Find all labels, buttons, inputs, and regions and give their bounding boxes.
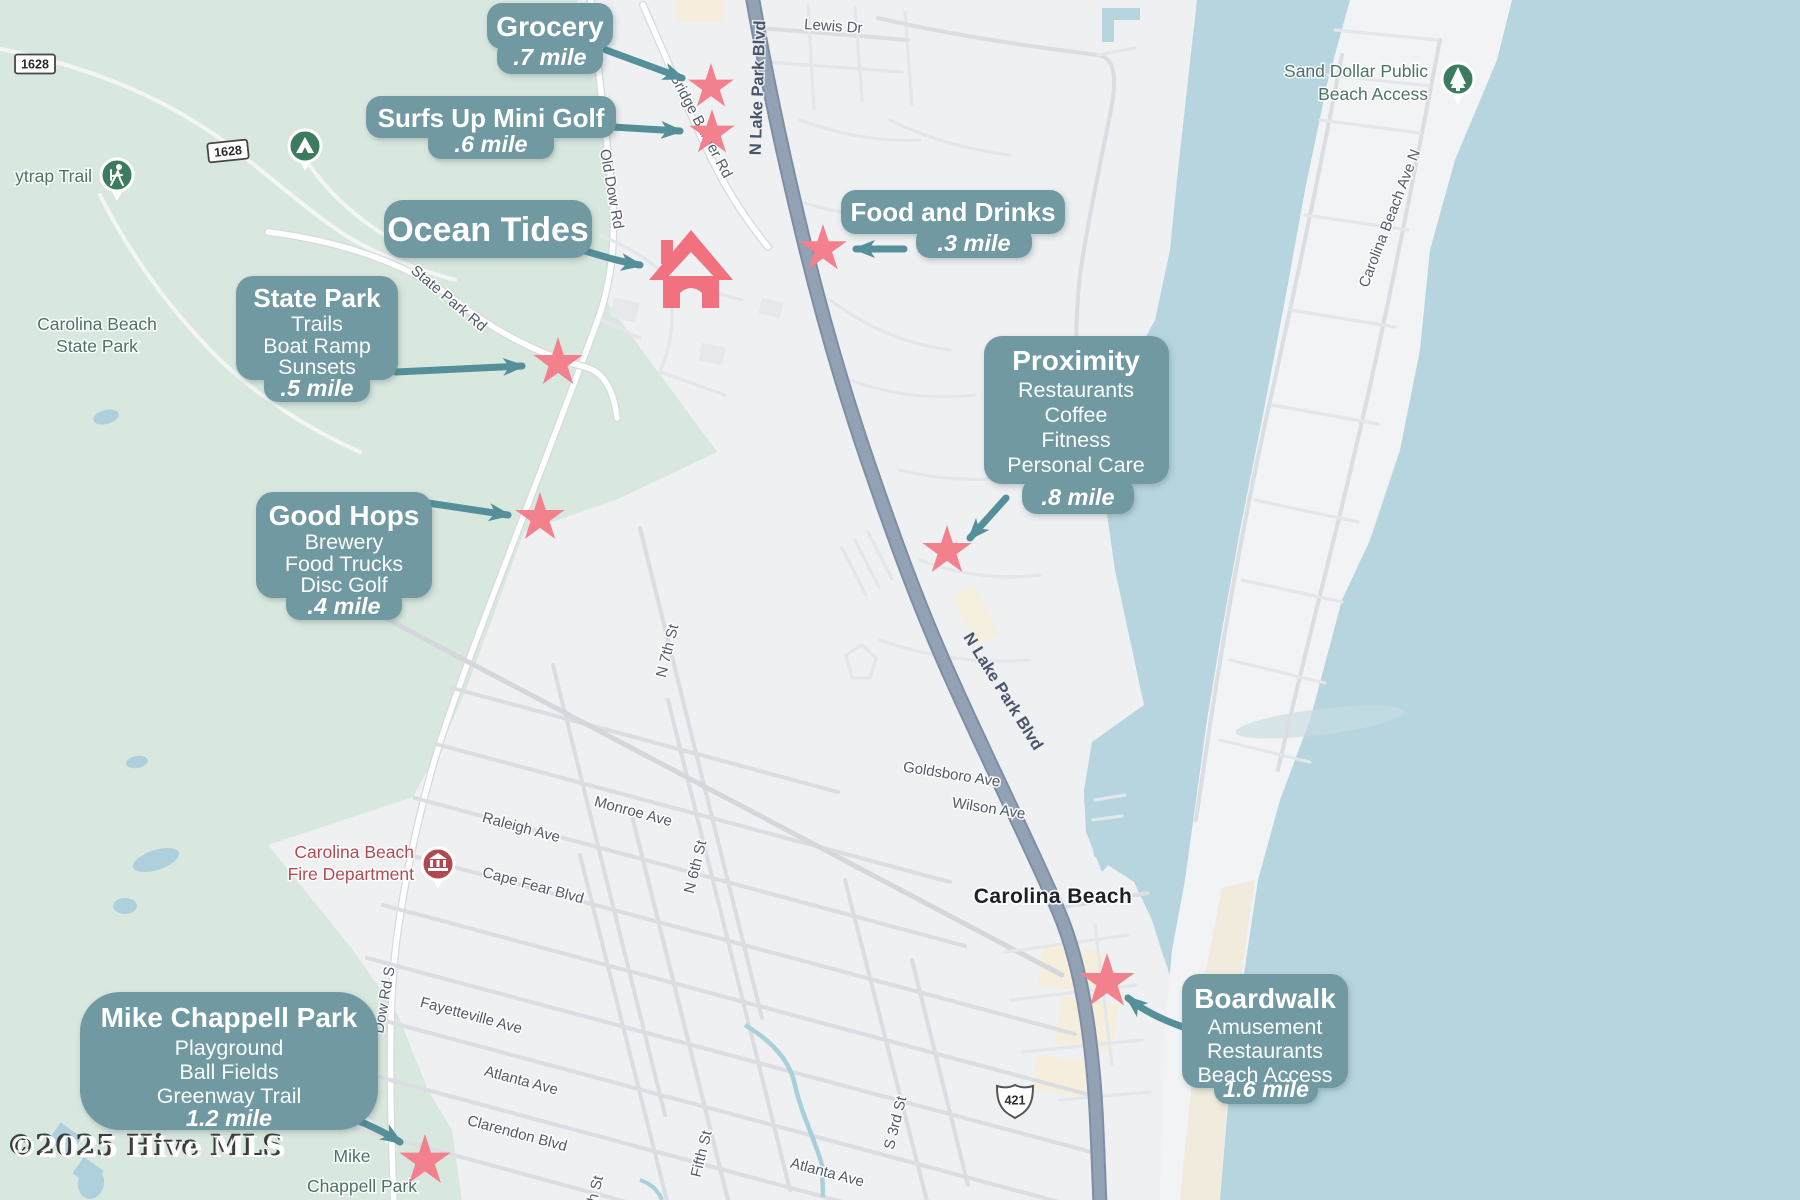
shield-1628-b: 1628 bbox=[207, 139, 249, 162]
shield-1628-a: 1628 bbox=[15, 55, 55, 74]
callout-ocean-tides: Ocean Tides bbox=[384, 200, 592, 258]
callout-boardwalk-distance: 1.6 mile bbox=[1223, 1076, 1309, 1102]
label-mike-park-2: Chappell Park bbox=[307, 1176, 417, 1196]
callout-proximity-line: Personal Care bbox=[1007, 453, 1144, 477]
callout-grocery-distance: .7 mile bbox=[513, 44, 586, 70]
callout-food-drinks-distance: .3 mile bbox=[937, 230, 1010, 256]
callout-mike-chappell: Mike Chappell Park Playground Ball Field… bbox=[80, 992, 378, 1131]
callout-mike-chappell-line: Ball Fields bbox=[179, 1060, 278, 1084]
callout-ocean-tides-title: Ocean Tides bbox=[387, 211, 589, 249]
callout-mike-chappell-title: Mike Chappell Park bbox=[101, 1002, 358, 1033]
label-sand-dollar-1: Sand Dollar Public bbox=[1284, 61, 1428, 81]
callout-boardwalk-line: Amusement bbox=[1208, 1015, 1323, 1039]
label-cb-state-park-2: State Park bbox=[56, 336, 138, 356]
callout-good-hops-distance: .4 mile bbox=[307, 593, 380, 619]
label-sand-dollar-2: Beach Access bbox=[1318, 84, 1428, 104]
map-canvas: Lewis Dr N Lake Park Blvd N Lake Park Bl… bbox=[0, 0, 1800, 1200]
callout-food-drinks-title: Food and Drinks bbox=[850, 197, 1055, 227]
callout-boardwalk-title: Boardwalk bbox=[1194, 983, 1336, 1014]
arrow-surfs-up bbox=[612, 127, 680, 131]
callout-surfs-up-title: Surfs Up Mini Golf bbox=[378, 103, 605, 133]
label-flytrap-trail: ytrap Trail bbox=[15, 166, 92, 186]
label-cb-state-park-1: Carolina Beach bbox=[37, 314, 157, 334]
callout-grocery: Grocery .7 mile bbox=[487, 3, 613, 74]
label-fire-dept-2: Fire Department bbox=[288, 864, 415, 884]
callout-proximity-line: Restaurants bbox=[1018, 378, 1134, 402]
svg-text:421: 421 bbox=[1005, 1094, 1026, 1108]
svg-text:1628: 1628 bbox=[213, 143, 242, 160]
callout-boardwalk-line: Restaurants bbox=[1207, 1039, 1323, 1063]
canal-arm bbox=[1102, 8, 1140, 20]
callout-proximity-line: Coffee bbox=[1045, 403, 1108, 427]
callout-boardwalk: Boardwalk Amusement Restaurants Beach Ac… bbox=[1182, 974, 1348, 1104]
watermark: ©2025 Hive MLS ©2025 Hive MLS bbox=[6, 1128, 286, 1164]
callout-state-park-title: State Park bbox=[253, 283, 381, 313]
callout-proximity-title: Proximity bbox=[1012, 345, 1140, 376]
callout-good-hops-line: Brewery bbox=[305, 530, 384, 554]
watermark-text: ©2025 Hive MLS bbox=[9, 1130, 286, 1164]
callout-mike-chappell-line: Playground bbox=[175, 1036, 284, 1060]
callout-state-park-line: Trails bbox=[291, 312, 343, 336]
callout-state-park-distance: .5 mile bbox=[280, 375, 353, 401]
svg-text:1628: 1628 bbox=[21, 58, 49, 72]
callout-proximity-line: Fitness bbox=[1041, 428, 1110, 452]
label-fire-dept-1: Carolina Beach bbox=[294, 842, 414, 862]
city-label: Carolina Beach bbox=[974, 885, 1133, 908]
callout-proximity-distance: .8 mile bbox=[1041, 484, 1114, 510]
label-mike-park-1: Mike bbox=[334, 1146, 371, 1166]
callout-grocery-title: Grocery bbox=[496, 11, 604, 42]
map-screenshot: Lewis Dr N Lake Park Blvd N Lake Park Bl… bbox=[0, 0, 1800, 1200]
callout-surfs-up-distance: .6 mile bbox=[454, 131, 527, 157]
callout-good-hops-title: Good Hops bbox=[269, 500, 420, 531]
